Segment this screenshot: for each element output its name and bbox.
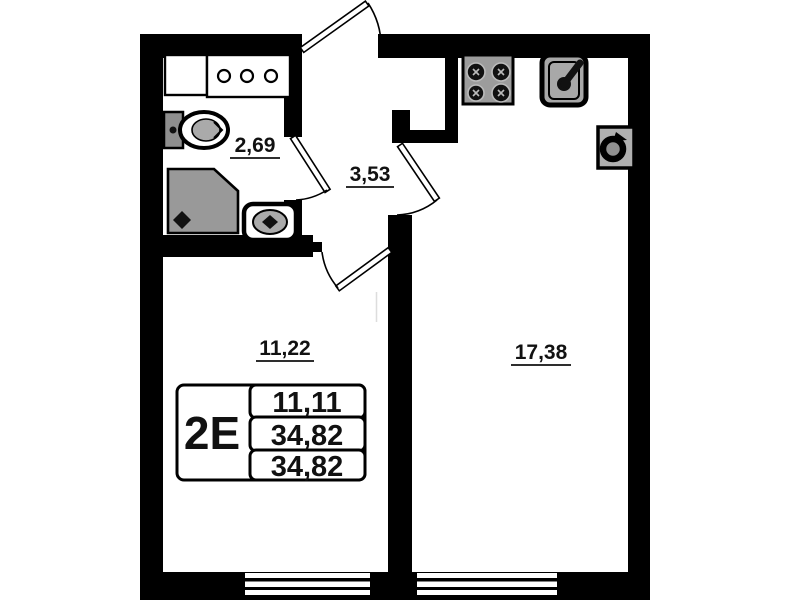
area-label-bathroom: 2,69 — [235, 134, 276, 157]
info-table-value-2: 34,82 — [271, 420, 344, 452]
apartment-type-label: 2E — [184, 407, 240, 459]
window-right-mullion-2 — [417, 587, 557, 590]
floor-plan-page: 2,69 3,53 11,22 17,38 2E 11,11 34,82 34,… — [0, 0, 799, 600]
toilet-bowl-inner — [192, 119, 220, 141]
area-label-room: 11,22 — [259, 337, 310, 360]
area-label-hallway: 3,53 — [350, 163, 391, 186]
wall-left — [140, 34, 163, 600]
entrance-door-leaf — [300, 1, 369, 52]
wall-kitchen-stub — [392, 110, 410, 143]
wall-partition — [388, 215, 412, 572]
window-left-mullion-2 — [245, 587, 370, 590]
info-table-value-3: 34,82 — [271, 451, 344, 483]
wall-bottom — [140, 572, 650, 600]
apartment-info-table: 2E 11,11 34,82 34,82 — [177, 385, 365, 483]
washer-drum — [603, 139, 623, 159]
wall-room-door-jamb — [300, 242, 322, 252]
bathroom-door-leaf — [290, 135, 330, 192]
kitchen-door-leaf — [398, 143, 440, 201]
washing-machine-icon — [165, 55, 207, 95]
washbasin-icon — [244, 204, 296, 240]
toilet-icon — [164, 112, 228, 148]
window-right-mullion-1 — [417, 578, 557, 582]
vanity-cabinet-icon — [207, 55, 290, 97]
room-door-leaf — [336, 248, 392, 291]
kitchen-door-arc — [397, 200, 437, 215]
toilet-tank-button — [170, 127, 177, 134]
window-icon-right — [417, 573, 557, 595]
vanity-knob-2 — [241, 70, 253, 82]
window-left-glass — [245, 573, 370, 595]
room-door-swing-icon — [322, 248, 392, 291]
area-label-kitchen-living: 17,38 — [515, 341, 568, 364]
bathroom-door-arc — [296, 190, 327, 200]
vanity-knob-1 — [218, 70, 230, 82]
window-icon-left — [245, 573, 370, 595]
room-door-arc — [322, 252, 338, 288]
washer-icon — [598, 127, 634, 168]
bathroom-door-swing-icon — [290, 135, 330, 200]
kitchen-door-swing-icon — [397, 143, 439, 215]
stove-icon — [463, 55, 513, 104]
shower-cabin-icon — [168, 169, 238, 233]
wall-right — [628, 34, 650, 600]
entrance-door-swing-icon — [300, 1, 381, 52]
window-right-glass — [417, 573, 557, 595]
kitchen-sink-icon — [542, 55, 586, 105]
floor-plan-drawing: 2,69 3,53 11,22 17,38 2E 11,11 34,82 34,… — [0, 0, 799, 600]
info-table-value-1: 11,11 — [272, 387, 341, 419]
window-left-mullion-1 — [245, 578, 370, 582]
washing-machine-body — [165, 55, 207, 95]
vanity-knob-3 — [265, 70, 277, 82]
